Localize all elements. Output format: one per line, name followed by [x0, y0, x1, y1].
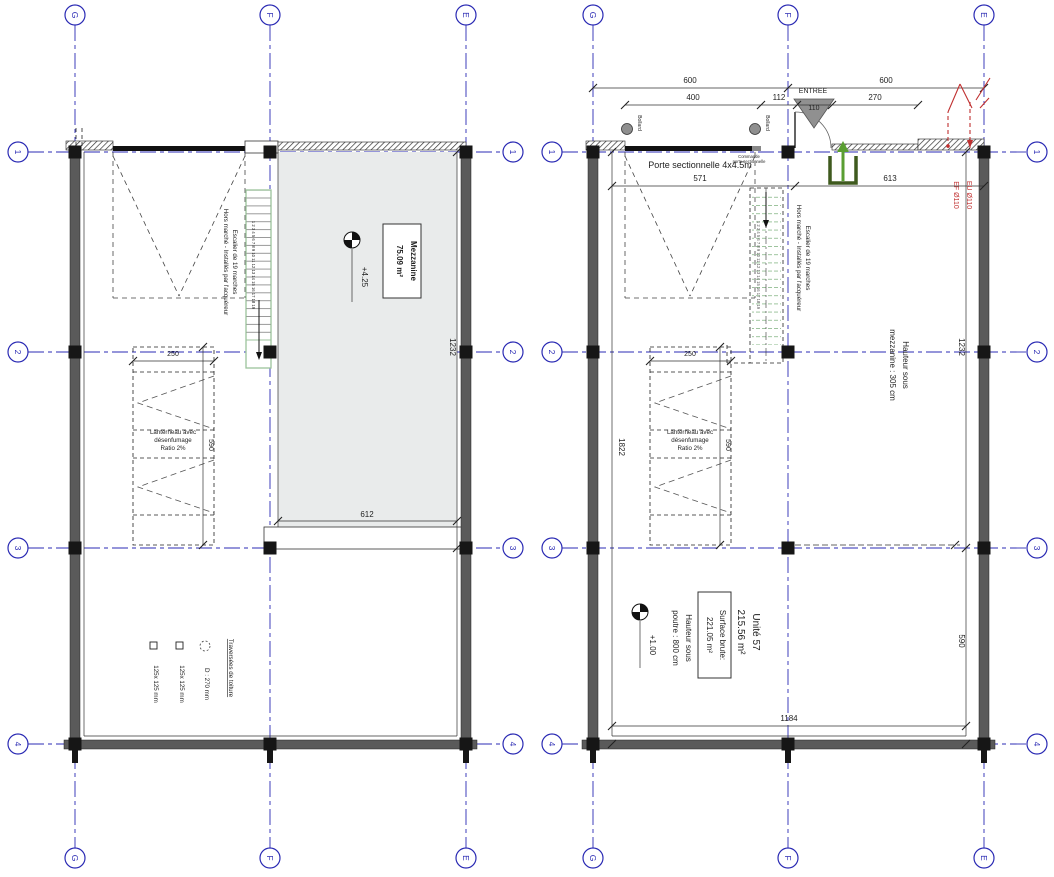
dim-270: 270	[868, 93, 882, 102]
red-ef-label: EF Ø110	[952, 181, 959, 209]
grid-row-bubble: 1	[547, 150, 557, 155]
lanterneau-text3: Ratio 2%	[677, 445, 703, 452]
grid-row-bubble: 2	[1032, 350, 1042, 355]
grid-row-bubble: 3	[508, 546, 518, 551]
dim-612: 612	[360, 510, 374, 519]
grid-col-bubble: G	[70, 12, 80, 19]
red-eu-label: EU Ø110	[965, 181, 972, 209]
legend-square-symbol-1	[176, 642, 183, 649]
grid-col-bubble: E	[979, 855, 989, 861]
room-area: 75.09 m²	[395, 245, 404, 277]
hauteur-poutre-line2: poutre : 800 cm	[671, 610, 680, 666]
lanterneau-width: 250	[684, 351, 696, 358]
legend-square-symbol-2	[150, 642, 157, 649]
grid-row-bubble: 1	[13, 150, 23, 155]
stair-note-line1: Escalier de 19 marches	[231, 230, 238, 295]
grid-col-bubble: F	[265, 12, 275, 17]
surface-brute-line2: 221.05 m²	[705, 617, 714, 653]
grid-row-bubble: 4	[1032, 742, 1042, 747]
dim-590-right: 590	[957, 634, 966, 648]
lanterneau-text3: Ratio 2%	[160, 445, 186, 452]
dim-1822: 1822	[617, 438, 626, 456]
dim-1232-left: 1232	[448, 338, 457, 356]
floor-plan-sheet: 1 2 3 4 5 6 7 8 9 10 11 12 13 14 15 16 1…	[0, 0, 1054, 877]
hauteur-mezzanine-line1: Hauteur sous	[901, 341, 910, 389]
roof-penetration-legend: Traversées de toiture D : 270 mm 125x 12…	[150, 639, 234, 703]
grid-row-bubble: 4	[547, 742, 557, 747]
grid-row-bubble: 2	[547, 350, 557, 355]
lanterneau-left: 250 590 Lanterneau avec désenfumage Rati…	[129, 343, 218, 549]
legend-item1: D : 270 mm	[203, 668, 210, 700]
grid-row-bubble: 4	[13, 742, 23, 747]
grid-col-bubble: E	[461, 12, 471, 18]
grid-col-bubble: F	[783, 855, 793, 860]
legend-item2: 125x 125 mm	[178, 665, 185, 703]
dim-600-left: 600	[683, 76, 697, 85]
lanterneau-height: 590	[207, 439, 214, 451]
dim-112: 112	[773, 93, 786, 102]
stair-tread-numbers: 1 2 3 4 5 6 7 8 9 10 11 12 13 14 15 16 1…	[251, 221, 256, 310]
surface-brute-line1: Surface brute:	[718, 610, 727, 660]
door-control-box	[752, 146, 761, 151]
mezzanine-edge-beam	[264, 527, 462, 549]
bollard-icon	[622, 124, 633, 135]
dim-613: 613	[883, 174, 897, 183]
grid-row-bubble: 2	[508, 350, 518, 355]
stair-note-line2: Hors marché - Installés par l'acquéreur	[222, 209, 229, 315]
bollard-label-1: Bollard	[636, 115, 642, 131]
entree-triangle-icon	[794, 99, 834, 128]
unit-name: Unité 57	[750, 613, 761, 651]
inner-wall-faces	[612, 152, 966, 736]
dim-600-right: 600	[879, 76, 893, 85]
dim-110: 110	[808, 105, 819, 112]
door-envelope-dashed	[625, 152, 755, 298]
lanterneau-text1: Lanterneau avec	[667, 429, 713, 436]
lanterneau-width: 250	[167, 351, 179, 358]
wall-hatch-right	[278, 142, 466, 150]
right-plan-ground-floor: ENTREE 110 600 600 400 112 270 Bollard B…	[582, 76, 995, 749]
dim-1184: 1184	[780, 714, 798, 723]
grid-row-bubble: 4	[508, 742, 518, 747]
grid-row-bubble: 1	[508, 150, 518, 155]
grid-col-bubble: F	[265, 855, 275, 860]
lanterneau-text1: Lanterneau avec	[150, 429, 196, 436]
hauteur-mezzanine-line2: mezzanine : 305 cm	[888, 329, 897, 401]
grid-row-bubble: 3	[547, 546, 557, 551]
plan-drawing: 1 2 3 4 5 6 7 8 9 10 11 12 13 14 15 16 1…	[0, 0, 1054, 877]
grid-col-bubble: G	[70, 855, 80, 862]
dim-571: 571	[693, 174, 707, 183]
stair-tread-numbers: 1 2 3 4 5 6 7 8 9 10 11 12 13 14 15 16 1…	[756, 221, 761, 310]
unit-area: 215.56 m²	[735, 609, 746, 655]
grid-col-bubble: F	[783, 12, 793, 17]
grid-row-bubble: 3	[1032, 546, 1042, 551]
legend-item3: 125x 125 mm	[152, 665, 159, 703]
left-plan-mezzanine: 1 2 3 4 5 6 7 8 9 10 11 12 13 14 15 16 1…	[64, 128, 477, 749]
grid-row-bubble: 1	[1032, 150, 1042, 155]
stair-note-line2: Hors marché - Installés par l'acquéreur	[795, 205, 802, 311]
entree-label: ENTREE	[799, 88, 828, 95]
grid-col-bubble: E	[461, 855, 471, 861]
lanterneau-height: 590	[724, 439, 731, 451]
legend-circle-symbol	[200, 641, 210, 651]
dim-1232-right: 1232	[957, 338, 966, 356]
mezzanine-slab	[278, 152, 457, 527]
lanterneau-text2: désenfumage	[671, 437, 709, 444]
level-value: +4.25	[360, 267, 369, 288]
wall-hatch-right	[918, 139, 984, 150]
grid-row-bubble: 2	[13, 350, 23, 355]
stair-note-line1: Escalier de 19 marches	[804, 226, 811, 291]
bollard-icon	[750, 124, 761, 135]
sectional-door-closed	[625, 146, 755, 151]
stair-mezzanine: 1 2 3 4 5 6 7 8 9 10 11 12 13 14 15 16 1…	[246, 190, 271, 368]
sectional-door-closed	[113, 146, 245, 151]
grid-col-bubble: E	[979, 12, 989, 18]
grid-col-bubble: G	[588, 12, 598, 19]
door-control-label2: porte sectionnelle	[733, 159, 766, 164]
lanterneau-text2: désenfumage	[154, 437, 192, 444]
lanterneau-right: 250 590 Lanterneau avec désenfumage Rati…	[646, 343, 735, 549]
grid-col-bubble: G	[588, 855, 598, 862]
bollard-label-2: Bollard	[764, 115, 770, 131]
level-marker-ground: +1.00	[632, 604, 657, 668]
room-name: Mezzanine	[409, 241, 418, 282]
hauteur-poutre-line1: Hauteur sous	[684, 614, 693, 662]
legend-title: Traversées de toiture	[227, 639, 234, 698]
grid-row-bubble: 3	[13, 546, 23, 551]
level-value: +1.00	[648, 635, 657, 656]
dim-400: 400	[686, 93, 700, 102]
stair-ground-floor: 1 2 3 4 5 6 7 8 9 10 11 12 13 14 15 16 1…	[727, 188, 783, 363]
